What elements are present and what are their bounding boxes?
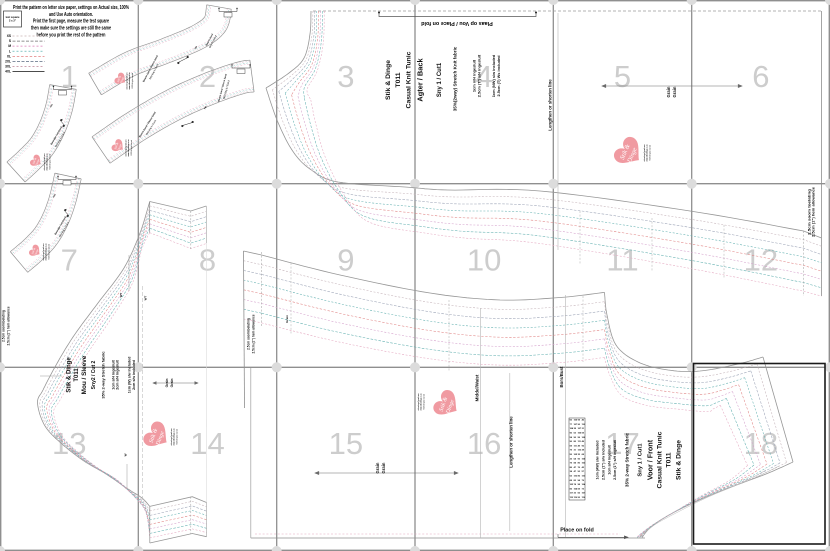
svg-text:Sny2 / Cut 2: Sny2 / Cut 2 — [91, 360, 97, 389]
svg-text:T011: T011 — [665, 452, 672, 467]
svg-text:stikendinge@gmail.com: stikendinge@gmail.com — [43, 153, 46, 170]
svg-text:Print the pattern on letter si: Print the pattern on letter size paper, … — [13, 5, 129, 11]
svg-text:Grain: Grain — [165, 379, 169, 388]
svg-text:6: 6 — [752, 59, 769, 94]
svg-text:2.5cm (T’) s/H ingesluit: 2.5cm (T’) s/H ingesluit — [477, 54, 482, 97]
svg-text:Middel/Waist: Middel/Waist — [475, 374, 480, 401]
svg-text:www.stikendinge.co.za: www.stikendinge.co.za — [45, 243, 48, 261]
svg-text:T011: T011 — [395, 72, 402, 87]
svg-text:L: L — [9, 49, 11, 53]
svg-text:Sny 1 / Cut1: Sny 1 / Cut1 — [637, 443, 643, 477]
svg-text:Voor / Front: Voor / Front — [646, 439, 655, 480]
svg-text:14: 14 — [190, 426, 224, 461]
svg-text:16: 16 — [467, 426, 501, 461]
svg-text:stikendinge@gmail.com: stikendinge@gmail.com — [643, 144, 646, 161]
svg-text:Lengthen or shorten line: Lengthen or shorten line — [548, 79, 553, 131]
svg-text:www.stikendinge.co.za: www.stikendinge.co.za — [128, 72, 131, 90]
svg-text:Bors/Bust: Bors/Bust — [559, 366, 564, 388]
svg-text:2cm s/H ingesluit: 2cm s/H ingesluit — [116, 359, 120, 389]
svg-text:www.stikendinge.co.za: www.stikendinge.co.za — [646, 144, 649, 161]
svg-text:Lengthen or shorten line: Lengthen or shorten line — [509, 416, 514, 468]
svg-text:www.stikendinge.co.za: www.stikendinge.co.za — [420, 393, 423, 410]
svg-text:www.stikendinge.co.za: www.stikendinge.co.za — [46, 153, 49, 171]
svg-text:Place on fold: Place on fold — [560, 528, 594, 534]
svg-text:9: 9 — [337, 243, 354, 278]
svg-text:stikendinge@gmail.com: stikendinge@gmail.com — [170, 428, 173, 445]
svg-text:2 x 2": 2 x 2" — [9, 19, 17, 23]
svg-text:stikendinge@gmail.com: stikendinge@gmail.com — [42, 243, 45, 260]
svg-text:Agter / Back: Agter / Back — [416, 58, 425, 102]
svg-text:Mou / Sleeve: Mou / Sleeve — [81, 355, 88, 394]
svg-text:1cm (W) s/w included: 1cm (W) s/w included — [128, 357, 132, 394]
svg-text:Grain: Grain — [666, 86, 671, 97]
svg-text:1: 1 — [61, 59, 78, 94]
svg-text:www.stikendinge.co.za: www.stikendinge.co.za — [127, 139, 130, 157]
svg-text:before you print the rest of t: before you print the rest of the pattern — [37, 32, 106, 38]
svg-text:then make sure the settings ar: then make sure the settings are still th… — [31, 26, 111, 32]
svg-text:2.5cm (T) Ws included: 2.5cm (T) Ws included — [496, 55, 501, 97]
svg-text:WT: WT — [144, 296, 148, 301]
svg-text:S: S — [9, 39, 11, 43]
svg-text:Stik & Dinge: Stik & Dinge — [675, 440, 682, 480]
svg-text:15: 15 — [329, 426, 363, 461]
svg-text:2XL: 2XL — [5, 60, 11, 64]
svg-text:35%(2way) Stretch Knit fabric: 35%(2way) Stretch Knit fabric — [453, 46, 458, 111]
svg-text:Stik & Dinge: Stik & Dinge — [66, 357, 72, 393]
svg-text:2.5cm soomtoelating: 2.5cm soomtoelating — [247, 318, 251, 350]
svg-text:3: 3 — [337, 59, 354, 94]
svg-text:18: 18 — [744, 426, 778, 461]
svg-text:35% 2-way Stretch fabric: 35% 2-way Stretch fabric — [100, 351, 105, 399]
svg-text:5: 5 — [614, 59, 631, 94]
svg-text:T011: T011 — [74, 368, 80, 382]
svg-text:2.5cm (1”) hem allowance: 2.5cm (1”) hem allowance — [812, 187, 816, 237]
svg-text:2: 2 — [199, 59, 216, 94]
svg-text:7: 7 — [61, 243, 78, 278]
svg-text:11: 11 — [606, 243, 638, 278]
svg-text:4XL: 4XL — [5, 70, 11, 74]
svg-text:stikendinge@gmail.com: stikendinge@gmail.com — [417, 393, 420, 410]
svg-text:Stik & Dinge: Stik & Dinge — [385, 60, 392, 100]
svg-text:XL: XL — [7, 54, 11, 58]
svg-text:2.5cm (1”) s/w included: 2.5cm (1”) s/w included — [602, 440, 606, 480]
svg-text:test square: test square — [6, 15, 20, 19]
svg-text:Casual Knit Tunic: Casual Knit Tunic — [406, 51, 413, 108]
svg-text:and Use Auto orientation.: and Use Auto orientation. — [49, 12, 93, 18]
svg-text:WT: WT — [119, 293, 123, 298]
svg-text:2.5cm soomtoelating: 2.5cm soomtoelating — [2, 310, 6, 342]
svg-text:www.stikendinge.co.za: www.stikendinge.co.za — [173, 428, 176, 445]
svg-text:2.5cm (1”) hem allowance: 2.5cm (1”) hem allowance — [252, 314, 256, 353]
svg-text:3XL: 3XL — [5, 65, 11, 69]
svg-text:Casual Knit Tunic: Casual Knit Tunic — [656, 431, 663, 488]
svg-text:Plaas op Vou / Place on fold: Plaas op Vou / Place on fold — [421, 20, 493, 26]
svg-text:stikendinge@gmail.com: stikendinge@gmail.com — [126, 72, 129, 89]
svg-text:35% 2-way Stretch fabric: 35% 2-way Stretch fabric — [625, 432, 630, 487]
svg-text:10: 10 — [467, 243, 501, 278]
svg-text:W: W — [124, 453, 128, 456]
svg-text:1cm (AW) s/w included: 1cm (AW) s/w included — [596, 441, 600, 480]
svg-text:12: 12 — [744, 243, 778, 278]
svg-text:Grain: Grain — [375, 462, 380, 473]
svg-text:Print the first page, measure: Print the first page, measure the test s… — [33, 19, 109, 25]
svg-text:Grain: Grain — [672, 86, 677, 97]
svg-text:2.5cm (1”) s/H ingesluit: 2.5cm (1”) s/H ingesluit — [613, 439, 617, 480]
svg-text:stikendinge@gmail.com: stikendinge@gmail.com — [125, 139, 128, 156]
svg-text:Grain: Grain — [285, 315, 289, 323]
svg-text:Grain: Grain — [170, 379, 174, 388]
svg-text:XS: XS — [7, 34, 11, 38]
svg-text:1cm s/H ingesluit: 1cm s/H ingesluit — [607, 444, 611, 474]
svg-text:Sny 1 / Cut1: Sny 1 / Cut1 — [437, 62, 443, 97]
svg-text:8: 8 — [199, 243, 216, 278]
svg-text:Grain: Grain — [381, 462, 386, 473]
svg-text:2.5cm (1”) hem allowance: 2.5cm (1”) hem allowance — [7, 306, 11, 345]
svg-text:2cm s/w included: 2cm s/w included — [132, 360, 136, 390]
svg-text:M: M — [8, 44, 11, 48]
